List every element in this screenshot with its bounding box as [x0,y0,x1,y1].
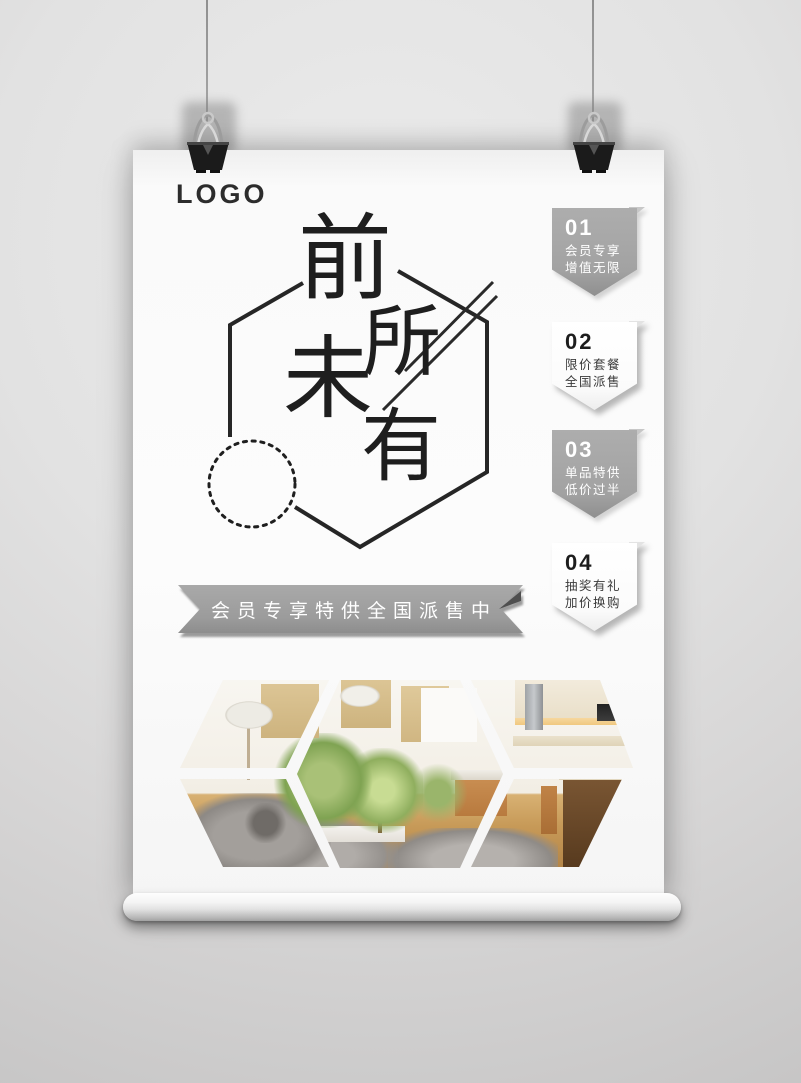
title-char-2: 所 [363,299,441,386]
badge-number: 03 [565,438,637,462]
hexagon-outline [230,271,487,547]
ribbon-text: 会员专享特供全国派售中 [204,596,497,623]
badge-line1: 限价套餐 [565,357,637,374]
poster-paper: LOGO 前 所 未 有 01 会员专享 增值无限 [133,150,664,897]
badge-line2: 增值无限 [565,260,637,277]
title-char-4: 有 [361,404,441,492]
badge-line2: 全国派售 [565,374,637,391]
photo-collage [173,678,643,883]
badge-number: 02 [565,330,637,354]
badge-number: 04 [565,551,637,575]
badge-line2: 低价过半 [565,482,637,499]
title-char-1: 前 [298,208,392,312]
title-char-3: 未 [283,331,373,430]
badge-number: 01 [565,216,637,240]
logo-text: LOGO [176,179,268,210]
badge-line1: 会员专享 [565,243,637,260]
badge-04: 04 抽奖有礼 加价换购 [552,543,637,631]
dotted-circle-icon [209,441,295,527]
badge-line1: 抽奖有礼 [565,578,637,595]
double-slash-icon [383,282,497,410]
binder-clip-icon [184,100,232,174]
paper-roll-edge [123,893,681,921]
badge-01: 01 会员专享 增值无限 [552,208,637,296]
binder-clip-icon [570,100,618,174]
badge-02: 02 限价套餐 全国派售 [552,322,637,410]
badge-line1: 单品特供 [565,465,637,482]
badge-line2: 加价换购 [565,595,637,612]
ribbon-banner: 会员专享特供全国派售中 [178,585,523,633]
wall-background: LOGO 前 所 未 有 01 会员专享 增值无限 [0,0,801,1083]
badge-03: 03 单品特供 低价过半 [552,430,637,518]
